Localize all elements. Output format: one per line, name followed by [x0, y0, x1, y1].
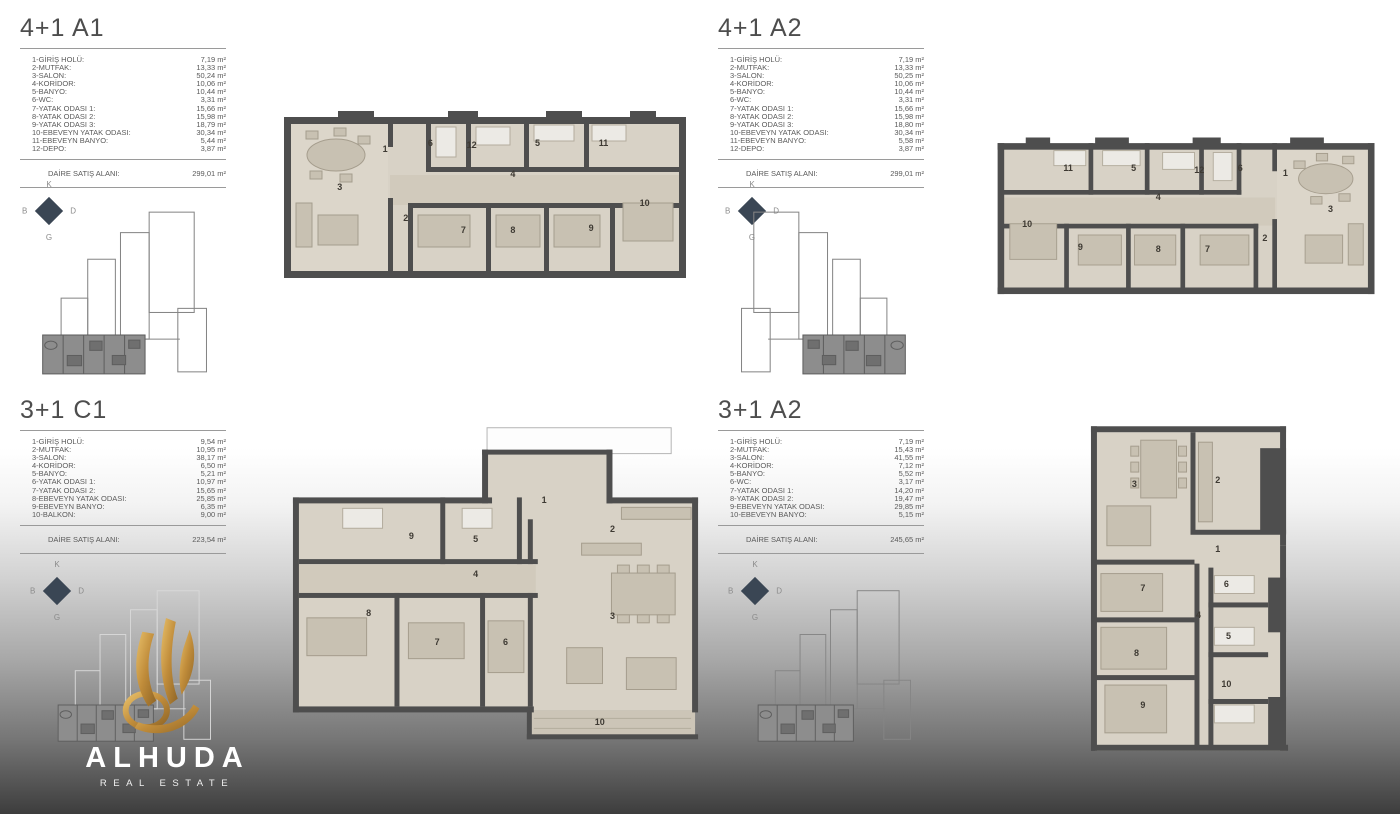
room-number: 10: [640, 198, 650, 208]
room-number: 11: [1063, 163, 1073, 173]
divider: [718, 430, 924, 431]
room-number: 11: [599, 138, 609, 148]
unit-title: 3+1 A2: [718, 396, 924, 425]
room-number: 7: [1205, 244, 1210, 254]
keyplan-3p1-a2: [736, 585, 926, 745]
room-list: 1-GİRİŞ HOLÜ: 7,19 m² 2-MUTFAK: 15,43 m²…: [718, 438, 924, 519]
total-area-row: DAİRE SATIŞ ALANI: 245,65 m²: [718, 535, 924, 544]
room-label: 12-DEPO:: [20, 145, 66, 153]
room-number: 9: [1078, 242, 1083, 252]
floorplan-4p1-a1: 161251132478910: [278, 103, 690, 295]
brand-logo: ALHUDA REAL ESTATE: [58, 612, 270, 789]
compass-north-label: K: [54, 560, 59, 569]
room-number: 7: [1140, 583, 1145, 593]
room-number: 8: [1156, 244, 1161, 254]
total-area-row: DAİRE SATIŞ ALANI: 223,54 m²: [20, 535, 226, 544]
compass-north-label: K: [752, 560, 757, 569]
unit-title: 3+1 C1: [20, 396, 226, 425]
room-number: 12: [1194, 165, 1204, 175]
total-area-label: DAİRE SATIŞ ALANI:: [20, 169, 120, 178]
room-number: 3: [1328, 204, 1333, 214]
room-number: 1: [383, 144, 388, 154]
floorplan-3p1-c1: 19542387610: [283, 423, 711, 745]
room-row: 10-EBEVEYN BANYO: 5,15 m²: [718, 511, 924, 519]
room-number: 4: [473, 569, 478, 579]
room-list: 1-GİRİŞ HOLÜ: 7,19 m² 2-MUTFAK: 13,33 m²…: [20, 56, 226, 153]
room-list: 1-GİRİŞ HOLÜ: 9,54 m² 2-MUTFAK: 10,95 m²…: [20, 438, 226, 519]
keyplan-4p1-a1: [26, 206, 216, 378]
room-number: 2: [1215, 475, 1220, 485]
room-number: 10: [1022, 219, 1032, 229]
compass-north-label: K: [46, 180, 51, 189]
total-area-value: 299,01 m²: [890, 169, 924, 178]
room-list: 1-GİRİŞ HOLÜ: 7,19 m² 2-MUTFAK: 13,33 m²…: [718, 56, 924, 153]
unit-panel-3p1-c1: 3+1 C1 1-GİRİŞ HOLÜ: 9,54 m² 2-MUTFAK: 1…: [20, 396, 226, 554]
room-area-value: 9,00 m²: [201, 511, 226, 519]
divider: [20, 553, 226, 554]
room-number: 8: [1134, 648, 1139, 658]
room-number: 2: [1262, 233, 1267, 243]
room-number: 7: [435, 637, 440, 647]
compass-west-label: B: [30, 587, 35, 596]
total-area-label: DAİRE SATIŞ ALANI:: [718, 535, 818, 544]
compass-west-label: B: [725, 207, 730, 216]
room-area-value: 3,87 m²: [899, 145, 924, 153]
plan-room-numbers: 161251132478910: [278, 103, 690, 295]
divider: [718, 553, 924, 554]
floorplan-3p1-a2: 32176458109: [1083, 418, 1297, 764]
room-number: 3: [610, 611, 615, 621]
plan-room-numbers: 32176458109: [1083, 418, 1297, 764]
divider: [718, 525, 924, 526]
room-number: 9: [409, 531, 414, 541]
calligraphy-emblem-icon: [105, 612, 223, 740]
room-number: 4: [1156, 192, 1161, 202]
floorplan-4p1-a2: 161251132478910: [982, 130, 1392, 310]
room-number: 9: [1140, 700, 1145, 710]
room-number: 1: [1283, 168, 1288, 178]
room-number: 9: [589, 223, 594, 233]
room-number: 4: [510, 169, 515, 179]
total-area-label: DAİRE SATIŞ ALANI:: [20, 535, 120, 544]
room-number: 6: [1238, 163, 1243, 173]
compass-west-label: B: [728, 587, 733, 596]
room-number: 3: [1132, 479, 1137, 489]
unit-panel-3p1-a2: 3+1 A2 1-GİRİŞ HOLÜ: 7,19 m² 2-MUTFAK: 1…: [718, 396, 924, 554]
divider: [20, 48, 226, 49]
total-area-row: DAİRE SATIŞ ALANI: 299,01 m²: [718, 169, 924, 178]
unit-panel-4p1-a1: 4+1 A1 1-GİRİŞ HOLÜ: 7,19 m² 2-MUTFAK: 1…: [20, 14, 226, 188]
compass-north-label: K: [749, 180, 754, 189]
unit-title: 4+1 A1: [20, 14, 226, 43]
room-number: 6: [1224, 579, 1229, 589]
room-label: 10-BALKON:: [20, 511, 75, 519]
room-row: 10-BALKON: 9,00 m²: [20, 511, 226, 519]
unit-title: 4+1 A2: [718, 14, 924, 43]
room-number: 5: [1131, 163, 1136, 173]
total-area-label: DAİRE SATIŞ ALANI:: [718, 169, 818, 178]
total-area-value: 223,54 m²: [192, 535, 226, 544]
brand-name: ALHUDA: [58, 742, 270, 775]
room-number: 12: [467, 140, 477, 150]
room-number: 1: [1215, 544, 1220, 554]
divider: [20, 525, 226, 526]
room-number: 6: [503, 637, 508, 647]
unit-panel-4p1-a2: 4+1 A2 1-GİRİŞ HOLÜ: 7,19 m² 2-MUTFAK: 1…: [718, 14, 924, 188]
room-label: 12-DEPO:: [718, 145, 764, 153]
room-number: 4: [1196, 610, 1201, 620]
plan-room-numbers: 161251132478910: [982, 130, 1392, 310]
divider: [20, 430, 226, 431]
room-row: 12-DEPO: 3,87 m²: [20, 145, 226, 153]
room-number: 2: [403, 213, 408, 223]
room-row: 12-DEPO: 3,87 m²: [718, 145, 924, 153]
room-number: 8: [366, 608, 371, 618]
plan-room-numbers: 19542387610: [283, 423, 711, 745]
divider: [20, 159, 226, 160]
room-area-value: 3,87 m²: [201, 145, 226, 153]
room-number: 3: [337, 182, 342, 192]
room-number: 5: [1226, 631, 1231, 641]
total-area-value: 245,65 m²: [890, 535, 924, 544]
divider: [718, 48, 924, 49]
room-number: 2: [610, 524, 615, 534]
divider: [718, 159, 924, 160]
room-label: 10-EBEVEYN BANYO:: [718, 511, 807, 519]
brochure-page: 4+1 A1 1-GİRİŞ HOLÜ: 7,19 m² 2-MUTFAK: 1…: [0, 0, 1400, 814]
brand-tagline: REAL ESTATE: [58, 778, 270, 789]
room-number: 6: [428, 138, 433, 148]
room-number: 5: [473, 534, 478, 544]
total-area-row: DAİRE SATIŞ ALANI: 299,01 m²: [20, 169, 226, 178]
room-number: 7: [461, 225, 466, 235]
room-number: 10: [595, 717, 605, 727]
room-number: 10: [1221, 679, 1231, 689]
total-area-value: 299,01 m²: [192, 169, 226, 178]
room-number: 1: [542, 495, 547, 505]
room-area-value: 5,15 m²: [899, 511, 924, 519]
room-number: 8: [510, 225, 515, 235]
keyplan-4p1-a2: [732, 206, 922, 378]
room-number: 5: [535, 138, 540, 148]
